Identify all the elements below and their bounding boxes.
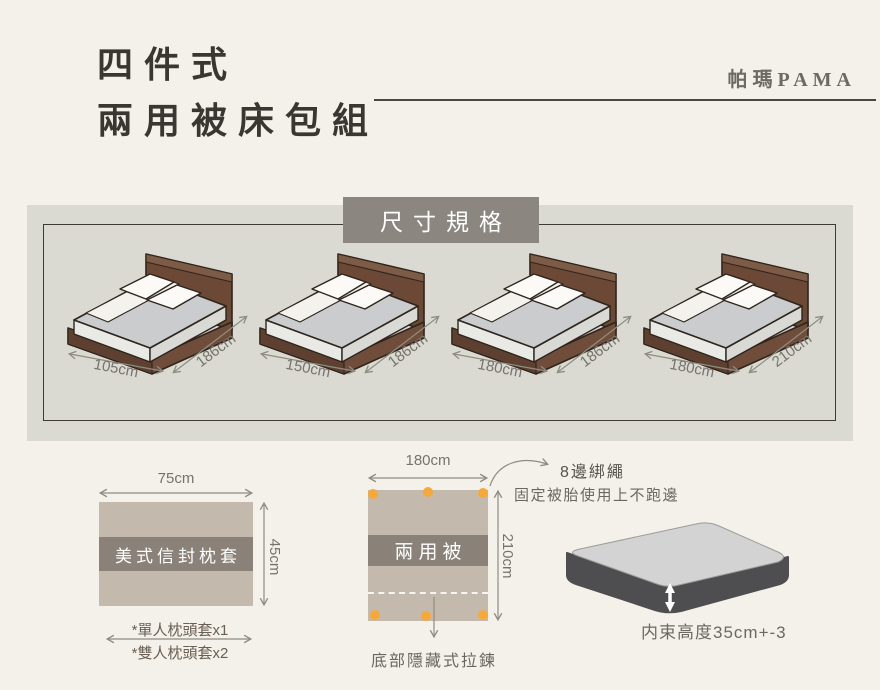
tie-dot [370, 610, 380, 620]
size-spec-heading: 尺寸規格 [343, 197, 539, 243]
mattress-illustration [567, 523, 788, 612]
duvet-width-label: 180cm [368, 452, 488, 469]
header-divider-line [374, 99, 876, 101]
pillowcase-name-band: 美式信封枕套 [99, 537, 253, 571]
bed-size-figure-king: 180cm 210cm [638, 250, 828, 382]
pillowcase-note-double: *雙人枕頭套x2 [95, 642, 265, 663]
pillowcase-figure: 美式信封枕套 [99, 502, 253, 606]
pillowcase-name-label: 美式信封枕套 [111, 542, 241, 567]
mattress-height-note: 内束高度35cm+-3 [641, 618, 787, 643]
size-spec-heading-label: 尺寸規格 [370, 203, 512, 237]
brand-logo-text: 帕瑪PAMA [728, 63, 857, 92]
tie-dot [368, 489, 378, 499]
product-spec-page: 四件式 兩用被床包組 帕瑪PAMA 尺寸規格 105cm 186cm [0, 0, 880, 690]
duvet-zipper-note: 底部隱藏式拉鍊 [354, 647, 514, 671]
duvet-figure: 兩用被 [368, 490, 488, 621]
page-title-line2: 兩用被床包組 [97, 92, 379, 144]
bed-size-figure-queen: 180cm 186cm [446, 250, 636, 382]
duvet-tie-title: 8邊綁繩 [560, 458, 625, 482]
duvet-tie-curved-arrow [490, 461, 547, 486]
tie-dot [478, 610, 488, 620]
duvet-name-band: 兩用被 [368, 535, 488, 566]
duvet-name-label: 兩用被 [389, 537, 466, 564]
page-title-line1: 四件式 [97, 36, 238, 88]
pillowcase-note-single: *單人枕頭套x1 [95, 619, 265, 640]
pillowcase-width-label: 75cm [99, 470, 253, 487]
bed-size-figure-double: 150cm 186cm [254, 250, 444, 382]
bed-size-figure-single: 105cm 186cm [62, 250, 252, 382]
duvet-tie-description: 固定被胎使用上不跑邊 [514, 484, 679, 505]
tie-dot [423, 487, 433, 497]
tie-dot [478, 488, 488, 498]
tie-dot [421, 611, 431, 621]
pillowcase-height-label: 45cm [266, 527, 283, 587]
duvet-zipper-dashed-line [368, 592, 488, 594]
duvet-height-label: 210cm [499, 521, 516, 591]
